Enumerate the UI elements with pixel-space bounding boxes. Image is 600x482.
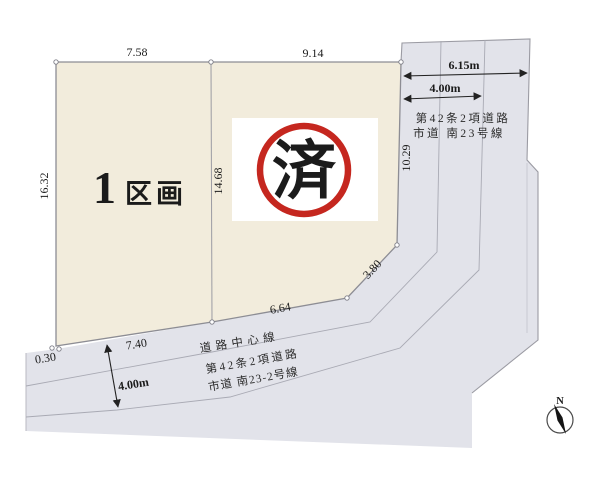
dim-top-right: 9.14 — [303, 46, 324, 60]
dim-top-left: 7.58 — [127, 45, 148, 59]
stamp-text: 済 — [272, 136, 337, 207]
vertex-dot — [210, 320, 214, 324]
dim-left-side: 16.32 — [37, 173, 51, 200]
vertex-dot — [54, 60, 58, 64]
dim-center-divider: 14.68 — [211, 168, 225, 195]
sold-stamp: 済 — [232, 118, 378, 221]
vertex-dot — [209, 60, 213, 64]
vertex-dot — [395, 243, 399, 247]
east-road-total-width-label: 6.15m — [449, 58, 480, 72]
vertex-dot — [57, 347, 61, 351]
parcel-unit-label: 区画 — [125, 179, 187, 209]
lot-layout-diagram: 済 1 区画 7.58 9.14 16.32 14.68 10.29 3.80 … — [0, 0, 600, 482]
east-road-lane-width-label: 4.00m — [430, 81, 461, 95]
dim-right-side: 10.29 — [399, 145, 413, 172]
east-road-name-line2: 市道 南23号線 — [413, 126, 505, 140]
vertex-dot — [345, 296, 349, 300]
vertex-dot — [399, 60, 403, 64]
east-road-name-line1: 第42条2項道路 — [416, 111, 511, 125]
plot-plan-drawing: 済 1 区画 7.58 9.14 16.32 14.68 10.29 3.80 … — [0, 0, 600, 482]
compass-north-label: N — [556, 396, 564, 407]
parcel-number: 1 — [93, 162, 116, 213]
